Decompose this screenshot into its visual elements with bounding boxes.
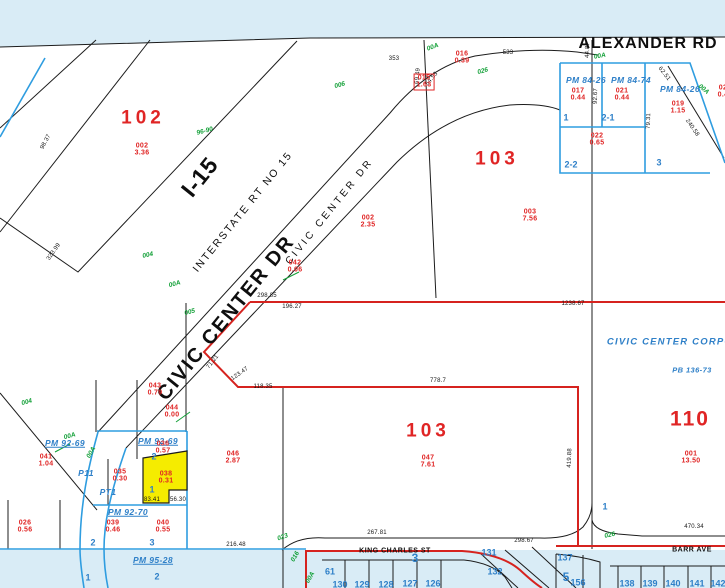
parcel-map-reference-label: P11 <box>78 469 94 478</box>
parcel-code-label: 0210.44 <box>615 89 630 102</box>
use-code-label: 00A <box>86 446 98 460</box>
parcel-acreage: 3.36 <box>135 150 150 157</box>
parcel-code-label: 0220.65 <box>590 134 605 147</box>
use-code-label: 006 <box>334 81 346 90</box>
dimension-label: 298.67 <box>514 538 534 544</box>
use-code-label: 004 <box>142 252 154 261</box>
lot-number-label: 142 <box>710 580 725 588</box>
lot-number-label: 3 <box>656 159 661 168</box>
use-code-label: 00A <box>696 84 709 97</box>
region-number-label: 110 <box>670 409 710 430</box>
parcel-acreage: 0.57 <box>156 448 171 455</box>
dimension-label: 298.85 <box>257 293 277 299</box>
parcel-map-reference-label: PB 136-73 <box>672 366 711 374</box>
dimension-label: 470.34 <box>684 524 704 530</box>
dimension-label: 778.7 <box>430 378 446 384</box>
use-code-label: 00A <box>168 280 181 289</box>
parcel-acreage: 0.30 <box>113 476 128 483</box>
dimension-label: 56.30 <box>170 497 186 503</box>
parcel-code-label: 020.4 <box>718 86 725 99</box>
use-code-label: 026 <box>604 532 616 541</box>
region-number-label: 103 <box>475 150 519 169</box>
parcel-code-label: 0350.30 <box>113 470 128 483</box>
parcel-code-label: 0160.39 <box>455 52 470 65</box>
parcel-acreage: 0.00 <box>165 412 180 419</box>
parcel-map-reference-label: CIVIC CENTER CORPOR <box>607 337 725 347</box>
street-label: CIVIC CENTER DR <box>284 157 375 266</box>
parcel-code-label: 0170.44 <box>571 89 586 102</box>
parcel-acreage: 13.50 <box>681 458 700 465</box>
parcel-code-label: 0440.00 <box>165 406 180 419</box>
use-code-label: 00A <box>426 43 439 53</box>
use-code-label: 00A <box>594 53 607 61</box>
parcel-code-label: 0380.31 <box>159 472 174 485</box>
parcel-acreage: 0.4 <box>718 92 725 99</box>
parcel-code-label: 0420.06 <box>288 261 303 274</box>
parcel-code-label: 0430.79 <box>148 384 163 397</box>
use-code-label: 023 <box>277 533 289 543</box>
lot-number-label: 141 <box>689 580 704 588</box>
dimension-label: 92.67 <box>593 88 600 104</box>
parcel-map-reference-label: PM 84-26 <box>566 76 606 85</box>
parcel-acreage: 0.39 <box>455 58 470 65</box>
parcel-code-label: 0360.57 <box>156 442 171 455</box>
parcel-acreage: 7.56 <box>523 216 538 223</box>
lot-number-label: 156 <box>570 579 585 588</box>
parcel-acreage: 2.87 <box>226 458 241 465</box>
parcel-code-label: 0191.15 <box>671 102 686 115</box>
dimension-label: 79.31 <box>646 113 653 129</box>
parcel-acreage: 2.35 <box>361 222 376 229</box>
dimension-label: 267.81 <box>367 530 387 536</box>
dimension-label: 1238.67 <box>561 301 584 307</box>
parcel-code-label: 00113.50 <box>681 452 700 465</box>
parcel-acreage: 0.06 <box>288 267 303 274</box>
lot-number-label: 2 <box>90 539 95 548</box>
parcel-map-reference-label: PM 84-74 <box>611 76 651 85</box>
dimension-label: 216.48 <box>226 542 246 548</box>
lot-number-label: 138 <box>619 580 634 588</box>
dimension-label: 83.41 <box>144 497 160 503</box>
street-label: I-15 <box>177 153 222 201</box>
dimension-label: 353 <box>389 56 400 62</box>
dimension-label: 62.51 <box>657 66 672 82</box>
parcel-code-label: 0400.55 <box>156 521 171 534</box>
lot-number-label: 1 <box>602 503 607 512</box>
dimension-label: 419.88 <box>567 448 574 468</box>
region-number-label: 103 <box>406 422 450 441</box>
parcel-code-label: 0411.04 <box>39 455 54 468</box>
lot-number-label: 129 <box>354 581 369 588</box>
lot-number-label: 61 <box>325 568 335 577</box>
lot-number-label: 2-1 <box>601 114 614 123</box>
map-labels: ALEXANDER RDI-15INTERSTATE RT NO 15CIVIC… <box>0 0 725 588</box>
parcel-code-label: 0462.87 <box>226 452 241 465</box>
parcel-acreage: 0.65 <box>590 140 605 147</box>
lot-number-label: 5 <box>563 571 570 583</box>
street-label: CIVIC CENTER DR <box>154 232 299 404</box>
use-code-label: 96-90 <box>196 127 214 138</box>
lot-number-label: 1 <box>85 574 90 583</box>
dimension-label: 44.87 <box>585 42 592 58</box>
parcel-acreage: 0.44 <box>571 95 586 102</box>
parcel-map-reference-label: PT1 <box>100 488 117 497</box>
lot-number-label: 140 <box>665 580 680 588</box>
parcel-acreage: 0.55 <box>156 527 171 534</box>
dimension-label: 533 <box>503 50 514 56</box>
lot-number-label: 127 <box>402 580 417 588</box>
parcel-acreage: 1.15 <box>671 108 686 115</box>
lot-number-label: 3 <box>412 552 419 564</box>
parcel-acreage: 1.04 <box>39 461 54 468</box>
lot-number-label: 2-2 <box>564 161 577 170</box>
use-code-label: 005 <box>184 308 196 317</box>
use-code-label: 026 <box>477 67 489 76</box>
parcel-map-reference-label: PM 84-26 <box>660 85 700 94</box>
parcel-code-label: 0022.35 <box>361 216 376 229</box>
parcel-code-label: 0477.61 <box>421 456 436 469</box>
dimension-label: 196.27 <box>282 304 302 310</box>
use-code-label: 00A <box>305 571 317 585</box>
parcel-acreage: 0.56 <box>18 527 33 534</box>
parcel-map-reference-label: PM 95-28 <box>133 556 173 565</box>
lot-number-label: 1 <box>563 114 568 123</box>
lot-number-label: 128 <box>378 581 393 588</box>
lot-number-label: 139 <box>642 580 657 588</box>
dimension-label: 98.37 <box>40 134 53 151</box>
parcel-acreage: 1.63 <box>417 82 432 89</box>
parcel-code-label: 0390.46 <box>106 521 121 534</box>
lot-number-label: 130 <box>332 581 347 588</box>
parcel-code-label: 0260.56 <box>18 521 33 534</box>
street-label: ALEXANDER RD <box>578 36 717 52</box>
dimension-label: 323.99 <box>46 242 62 261</box>
parcel-acreage: 0.31 <box>159 478 174 485</box>
parcel-acreage: 0.44 <box>615 95 630 102</box>
parcel-map: ALEXANDER RDI-15INTERSTATE RT NO 15CIVIC… <box>0 0 725 588</box>
parcel-acreage: 0.79 <box>148 390 163 397</box>
use-code-label: 004 <box>21 398 33 407</box>
lot-number-label: 132 <box>487 568 502 577</box>
parcel-acreage: 7.61 <box>421 462 436 469</box>
parcel-map-reference-label: PM 92-70 <box>108 508 148 517</box>
region-number-label: 102 <box>121 109 165 128</box>
parcel-code-label: 0151.63 <box>414 74 435 91</box>
street-label: KING CHARLES ST <box>359 548 431 555</box>
lot-number-label: 3 <box>149 539 154 548</box>
lot-number-label: 1 <box>149 486 154 495</box>
dimension-label: 240.58 <box>684 118 700 137</box>
lot-number-label: 131 <box>481 549 496 558</box>
street-label: BARR AVE <box>672 547 712 554</box>
lot-number-label: 137 <box>557 554 572 563</box>
use-code-label: 016 <box>290 551 301 564</box>
parcel-code-label: 0037.56 <box>523 210 538 223</box>
lot-number-label: 126 <box>425 580 440 588</box>
dimension-label: 118.35 <box>253 384 272 390</box>
lot-number-label: 2 <box>154 573 159 582</box>
parcel-code-label: 0023.36 <box>135 144 150 157</box>
dimension-label: 123.47 <box>230 366 249 382</box>
parcel-acreage: 0.46 <box>106 527 121 534</box>
